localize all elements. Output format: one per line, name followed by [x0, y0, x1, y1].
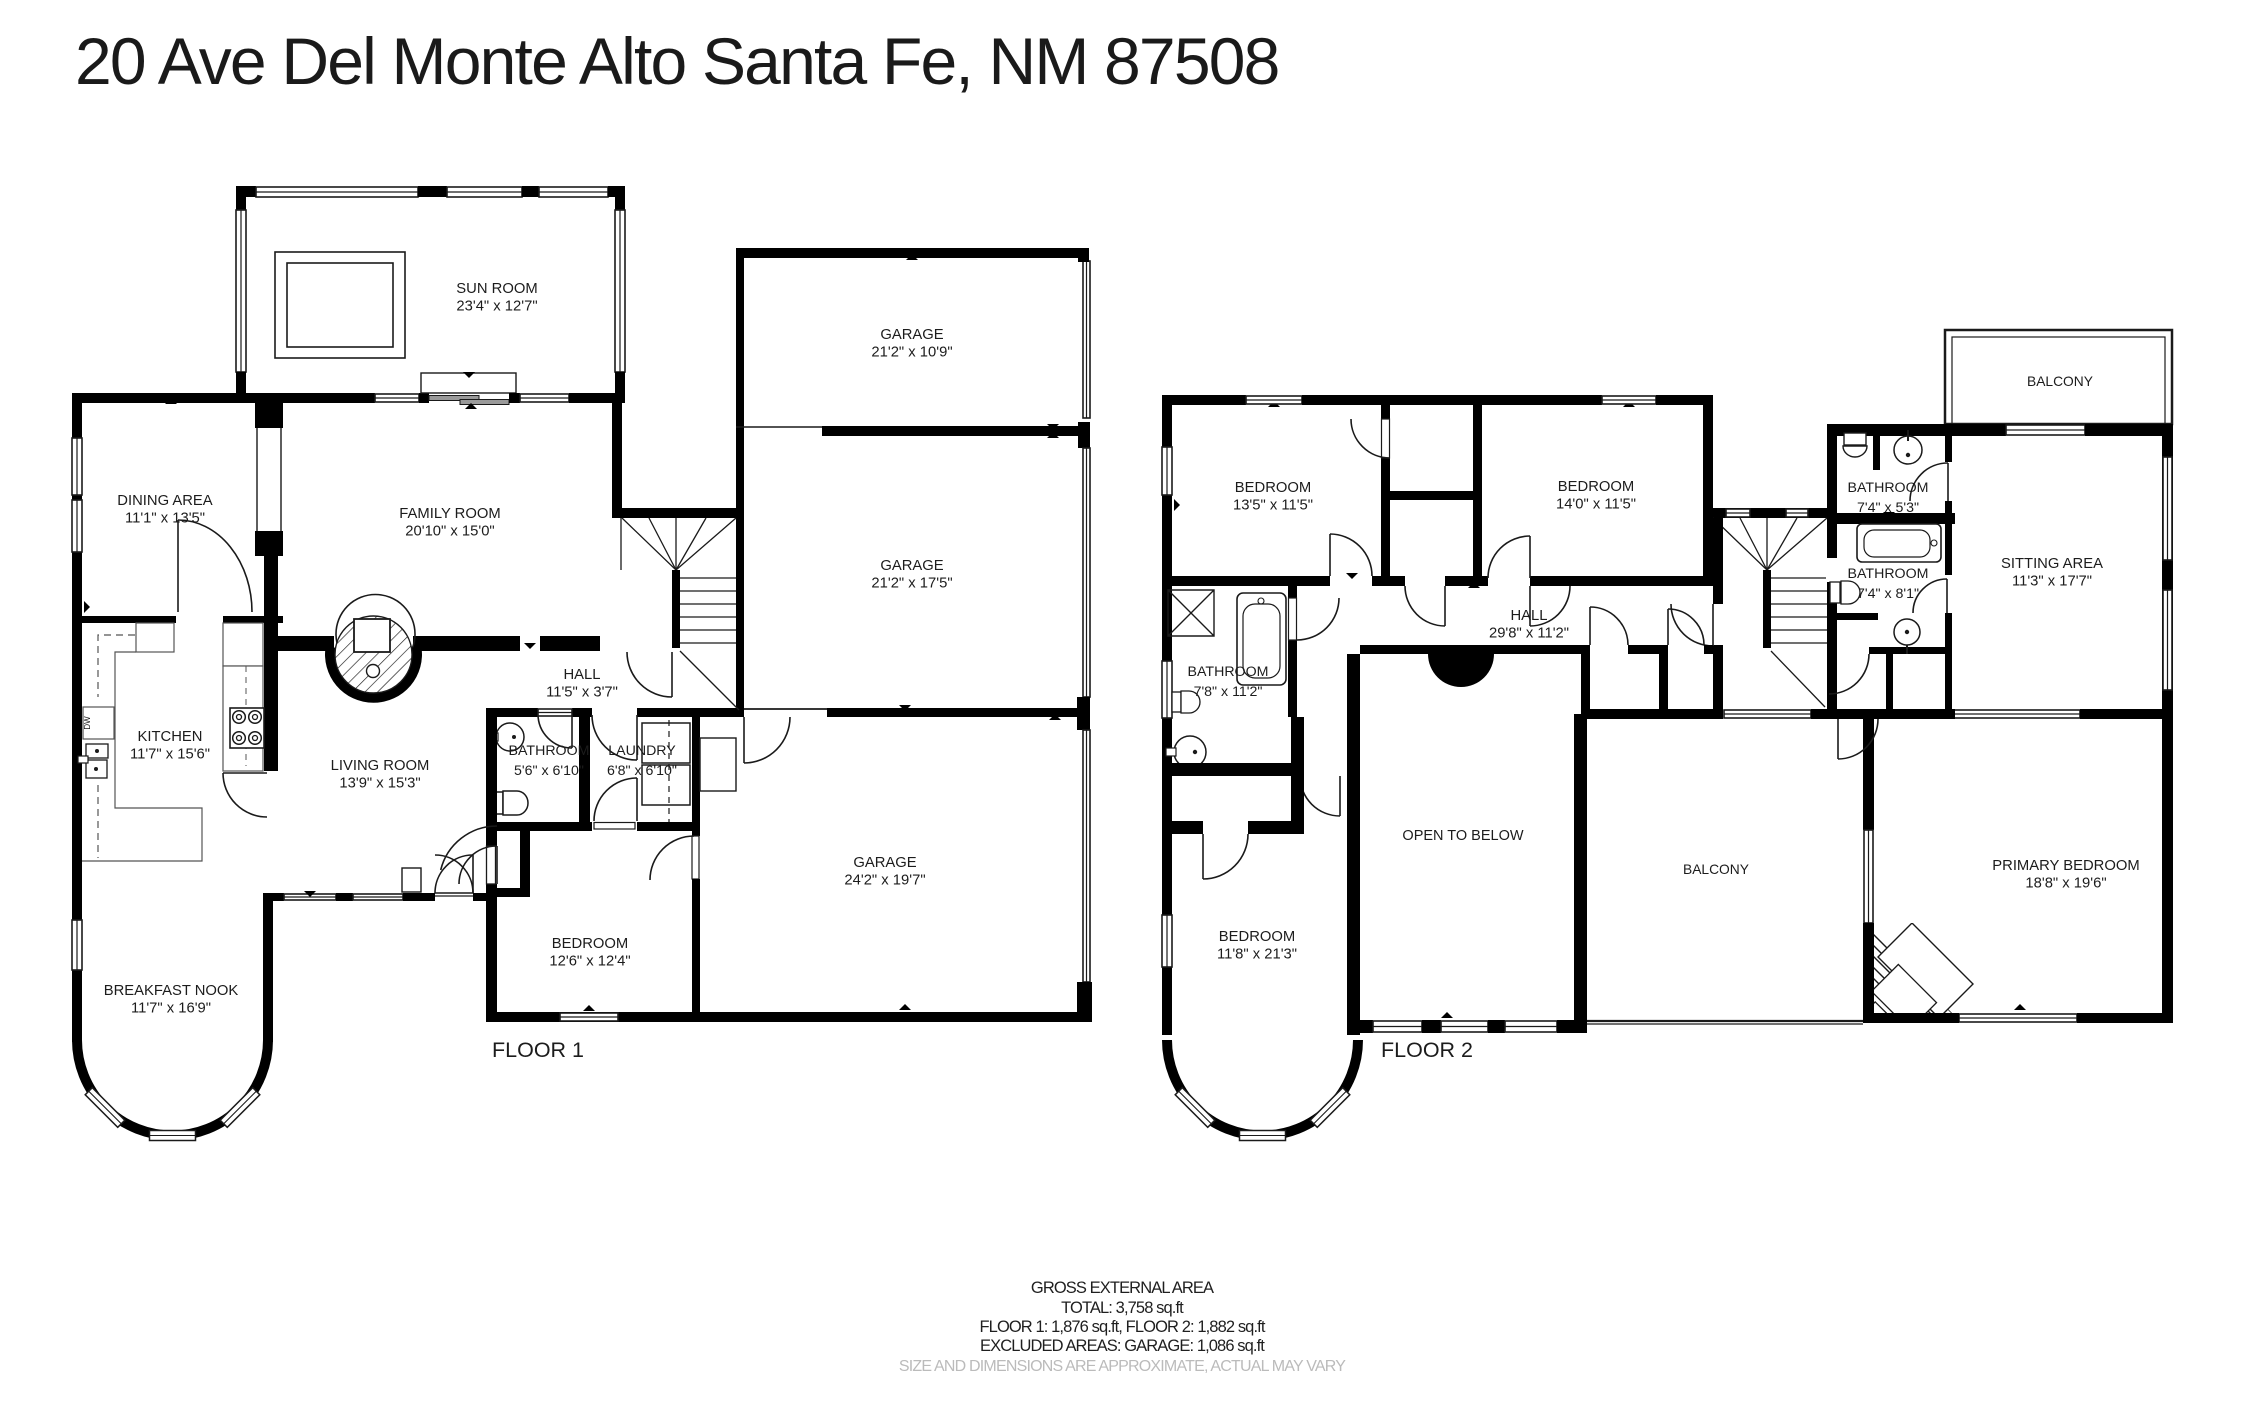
svg-text:BATHROOM: BATHROOM [1848, 566, 1929, 582]
svg-text:GARAGE: GARAGE [880, 558, 943, 574]
svg-text:BALCONY: BALCONY [1683, 862, 1749, 877]
svg-text:7'8" x 11'2": 7'8" x 11'2" [1194, 684, 1263, 700]
svg-text:LAUNDRY: LAUNDRY [608, 743, 676, 759]
svg-text:BEDROOM: BEDROOM [1558, 479, 1634, 495]
svg-text:13'5" x 11'5": 13'5" x 11'5" [1233, 498, 1313, 514]
svg-text:SITTING AREA: SITTING AREA [2001, 556, 2103, 572]
svg-text:GARAGE: GARAGE [880, 327, 943, 343]
svg-text:LIVING ROOM: LIVING ROOM [331, 758, 430, 774]
svg-text:14'0" x 11'5": 14'0" x 11'5" [1556, 497, 1636, 513]
svg-text:PRIMARY BEDROOM: PRIMARY BEDROOM [1992, 858, 2139, 874]
svg-text:EXCLUDED AREAS: GARAGE: 1,086: EXCLUDED AREAS: GARAGE: 1,086 sq.ft [980, 1337, 1265, 1355]
svg-text:TOTAL: 3,758 sq.ft: TOTAL: 3,758 sq.ft [1061, 1299, 1184, 1317]
svg-text:12'6" x 12'4": 12'6" x 12'4" [549, 954, 630, 970]
svg-text:11'8" x 21'3": 11'8" x 21'3" [1217, 947, 1297, 963]
svg-text:18'8" x 19'6": 18'8" x 19'6" [2025, 876, 2106, 892]
svg-text:BATHROOM: BATHROOM [509, 743, 590, 759]
svg-text:7'4" x 5'3": 7'4" x 5'3" [1857, 500, 1919, 516]
svg-text:FLOOR 2: FLOOR 2 [1381, 1038, 1473, 1062]
svg-text:23'4" x 12'7": 23'4" x 12'7" [456, 299, 537, 315]
svg-text:BALCONY: BALCONY [2027, 374, 2093, 389]
svg-text:21'2" x 17'5": 21'2" x 17'5" [871, 576, 952, 592]
svg-text:FLOOR 1: 1,876 sq.ft, FLOOR 2:: FLOOR 1: 1,876 sq.ft, FLOOR 2: 1,882 sq.… [979, 1318, 1265, 1336]
svg-text:24'2" x 19'7": 24'2" x 19'7" [844, 873, 925, 889]
svg-text:BEDROOM: BEDROOM [1219, 929, 1295, 945]
svg-text:29'8" x 11'2": 29'8" x 11'2" [1489, 626, 1569, 642]
svg-text:DINING AREA: DINING AREA [117, 493, 213, 509]
svg-text:DW: DW [83, 716, 92, 730]
svg-text:FLOOR 1: FLOOR 1 [492, 1038, 584, 1062]
svg-text:OPEN TO BELOW: OPEN TO BELOW [1402, 828, 1523, 844]
svg-text:GARAGE: GARAGE [853, 855, 916, 871]
svg-text:11'7" x 16'9": 11'7" x 16'9" [131, 1001, 211, 1017]
svg-text:5'6" x 6'10": 5'6" x 6'10" [514, 763, 584, 779]
svg-text:FAMILY ROOM: FAMILY ROOM [399, 506, 500, 522]
svg-text:7'4" x 8'1": 7'4" x 8'1" [1857, 586, 1919, 602]
svg-text:GROSS EXTERNAL AREA: GROSS EXTERNAL AREA [1031, 1279, 1214, 1297]
svg-text:11'3" x 17'7": 11'3" x 17'7" [2012, 574, 2092, 590]
svg-text:KITCHEN: KITCHEN [138, 729, 203, 745]
svg-text:SUN ROOM: SUN ROOM [456, 281, 537, 297]
svg-text:6'8" x 6'10": 6'8" x 6'10" [607, 763, 677, 779]
svg-text:BATHROOM: BATHROOM [1848, 480, 1929, 496]
svg-text:13'9" x 15'3": 13'9" x 15'3" [339, 776, 420, 792]
svg-text:11'1" x 13'5": 11'1" x 13'5" [125, 511, 205, 527]
svg-text:BATHROOM: BATHROOM [1188, 664, 1269, 680]
svg-text:BEDROOM: BEDROOM [1235, 480, 1311, 496]
svg-text:HALL: HALL [1510, 608, 1547, 624]
svg-text:20'10" x 15'0": 20'10" x 15'0" [405, 524, 494, 540]
svg-text:21'2" x 10'9": 21'2" x 10'9" [871, 345, 952, 361]
svg-text:11'5" x 3'7": 11'5" x 3'7" [546, 685, 618, 701]
svg-text:11'7" x 15'6": 11'7" x 15'6" [130, 747, 210, 763]
svg-text:20 Ave Del Monte Alto Santa Fe: 20 Ave Del Monte Alto Santa Fe, NM 87508 [75, 24, 1279, 98]
svg-text:BREAKFAST NOOK: BREAKFAST NOOK [104, 983, 239, 999]
svg-text:BEDROOM: BEDROOM [552, 936, 628, 952]
svg-text:SIZE AND DIMENSIONS ARE APPROX: SIZE AND DIMENSIONS ARE APPROXIMATE, ACT… [899, 1358, 1346, 1375]
svg-text:HALL: HALL [563, 667, 600, 683]
